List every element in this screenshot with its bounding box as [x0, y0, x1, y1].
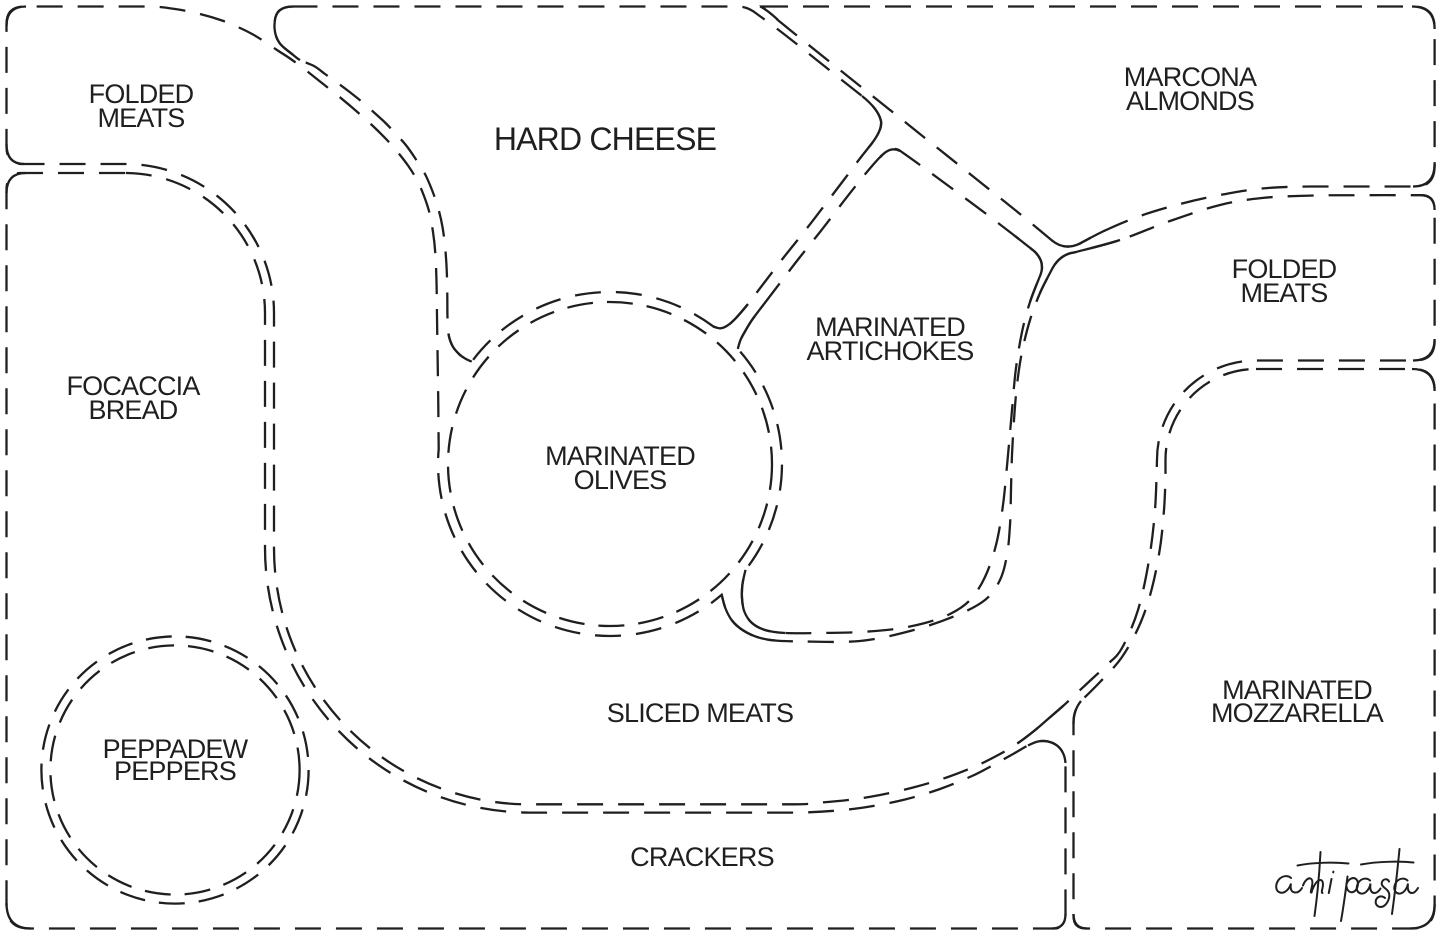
- svg-text:PEPPERS: PEPPERS: [114, 756, 236, 786]
- svg-text:MEATS: MEATS: [1240, 278, 1327, 308]
- svg-text:BREAD: BREAD: [88, 395, 177, 425]
- svg-text:OLIVES: OLIVES: [574, 465, 667, 495]
- svg-text:ALMONDS: ALMONDS: [1126, 86, 1254, 116]
- svg-text:ARTICHOKES: ARTICHOKES: [806, 336, 973, 366]
- svg-text:MOZZARELLA: MOZZARELLA: [1211, 698, 1384, 728]
- svg-text:SLICED MEATS: SLICED MEATS: [607, 698, 793, 728]
- svg-text:MEATS: MEATS: [97, 103, 184, 133]
- svg-text:HARD CHEESE: HARD CHEESE: [494, 121, 716, 157]
- svg-text:CRACKERS: CRACKERS: [630, 842, 774, 872]
